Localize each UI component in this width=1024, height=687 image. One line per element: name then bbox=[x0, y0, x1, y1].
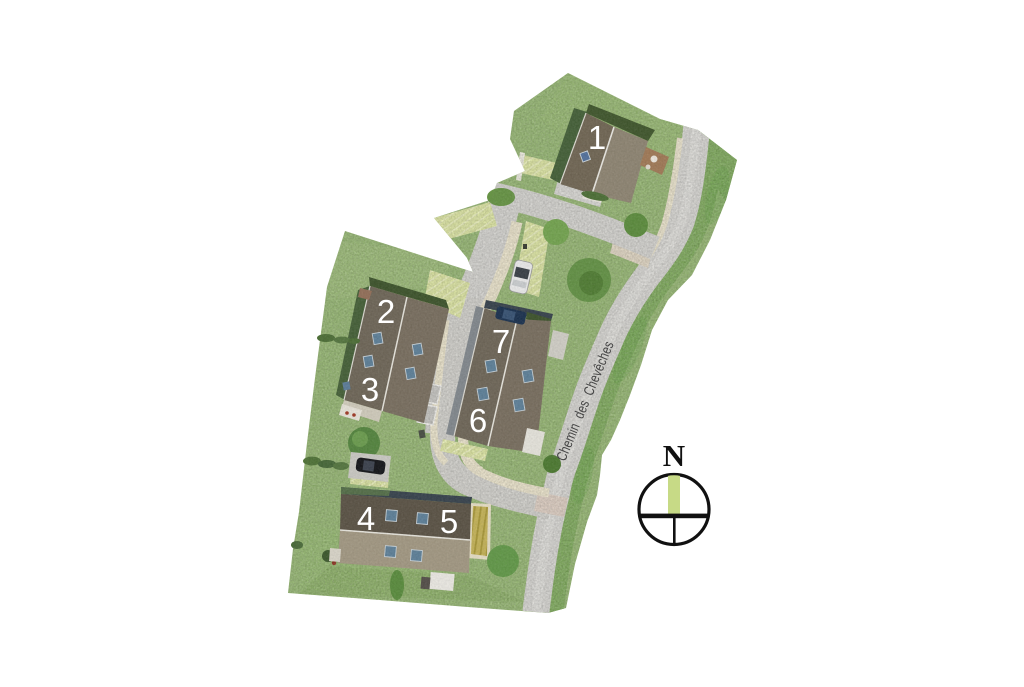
svg-text:N: N bbox=[663, 438, 685, 473]
svg-text:7: 7 bbox=[492, 323, 510, 360]
svg-text:5: 5 bbox=[440, 503, 458, 540]
svg-text:1: 1 bbox=[588, 119, 606, 156]
svg-text:4: 4 bbox=[357, 500, 375, 537]
svg-text:2: 2 bbox=[377, 293, 395, 330]
svg-text:3: 3 bbox=[361, 371, 379, 408]
svg-text:6: 6 bbox=[469, 402, 487, 439]
